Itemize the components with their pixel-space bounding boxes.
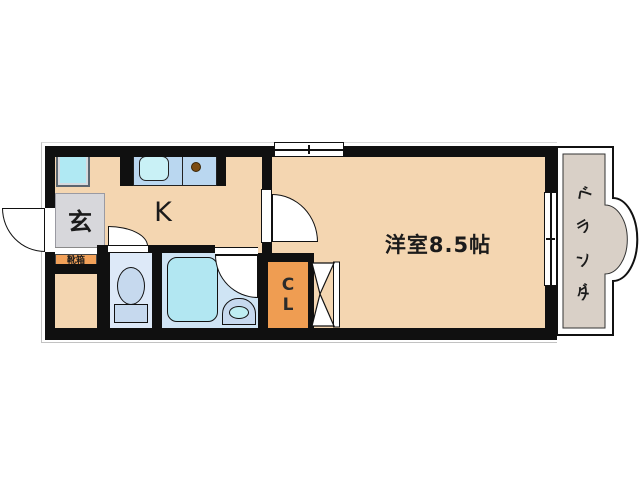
- toilet-tank-icon: [114, 304, 148, 323]
- wall-bottom: [45, 328, 557, 340]
- veranda-char-1: ベ: [572, 181, 596, 207]
- entrance-door-swing: [2, 208, 45, 252]
- wall-bath-closet: [258, 253, 268, 340]
- top-sliding-window: [274, 142, 344, 157]
- veranda-char-4: ダ: [572, 280, 596, 306]
- kitchen-sink-icon: [139, 156, 169, 181]
- wall-genkan-toilet: [97, 253, 110, 340]
- veranda-char-3: ン: [572, 247, 596, 273]
- wall-stub-washer: [120, 146, 133, 186]
- window-tick: [308, 145, 310, 154]
- toilet-bowl-icon: [117, 267, 145, 305]
- bath-door-threshold: [215, 247, 258, 255]
- window-tick: [546, 238, 555, 240]
- closet-label-l: L: [283, 295, 294, 315]
- bathtub-icon: [167, 257, 218, 322]
- wall-left-lower: [45, 252, 55, 340]
- wall-corridor-a: [97, 245, 108, 253]
- floor-plan: 玄 K 洋室8.5帖 C L 靴箱 ベ ラ ン ダ: [0, 0, 640, 480]
- shoe-box-label: 靴箱: [55, 254, 97, 265]
- genkan-label: 玄: [55, 193, 105, 246]
- wall-kitchen-room-upper: [262, 146, 272, 194]
- veranda-char-2: ラ: [572, 214, 596, 240]
- wall-stub-counter: [217, 146, 226, 186]
- closet-label-c: C: [282, 275, 294, 295]
- washer-pan-icon: [56, 153, 90, 187]
- wall-left-upper: [45, 146, 55, 208]
- closet-label: C L: [268, 264, 308, 326]
- main-room-door-leaf: [261, 189, 272, 243]
- closet-bifold-doors: [308, 258, 344, 332]
- veranda-label: ベ ラ ン ダ: [570, 183, 598, 303]
- wall-toilet-bath: [152, 248, 162, 340]
- wall-right-lower: [545, 286, 557, 340]
- western-room-label: 洋室8.5帖: [330, 230, 546, 258]
- stove-burner-icon: [191, 162, 201, 172]
- bath-basin-bowl-icon: [229, 306, 249, 319]
- kitchen-label: K: [143, 196, 183, 228]
- toilet-door-threshold: [108, 245, 148, 253]
- wall-right-upper: [545, 146, 557, 192]
